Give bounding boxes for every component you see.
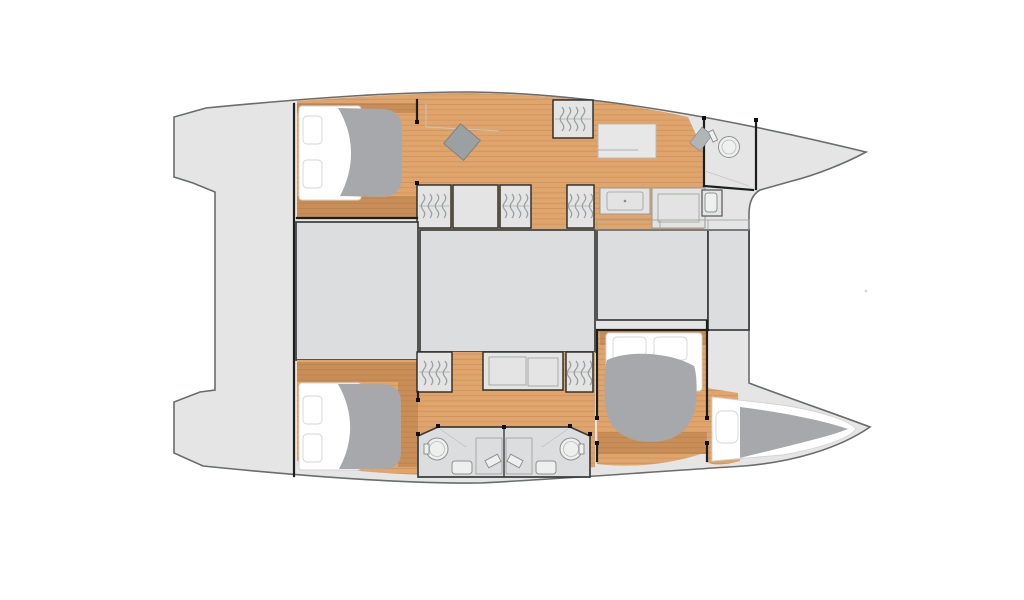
pillow [303,396,322,424]
deck-block-right [597,230,708,320]
wardrobe [500,185,531,228]
bow-berth [712,397,856,461]
deck-block-center [420,230,595,352]
floorplan-canvas [0,0,1024,600]
speck [865,290,868,293]
deck-block-bow [708,230,749,330]
wardrobe [417,185,451,228]
pillow [303,434,322,462]
forward-berth-seat [598,124,656,158]
faucet-icon [424,444,429,454]
bottom-aft-cabin-foot-platform [297,362,418,382]
bed-aft-top-cabin [299,106,402,200]
toilet-icon [536,461,556,474]
deck-block-left [296,222,418,360]
toilet-icon [452,461,472,474]
faucet-icon [579,444,584,454]
top-hull-wardrobe-row [417,185,594,228]
wardrobe [567,185,594,228]
cabinet [453,185,498,228]
duvet [605,354,697,442]
catamaran-floorplan [0,0,1024,600]
pillow [303,116,322,144]
pillow [716,411,738,443]
bed-aft-bottom-cabin [299,383,401,470]
drain-dot [624,200,627,203]
pillow [303,160,322,188]
twin-bathrooms [416,424,592,477]
bottom-hull-wardrobe-row [417,352,593,392]
toilet-icon [705,193,717,212]
